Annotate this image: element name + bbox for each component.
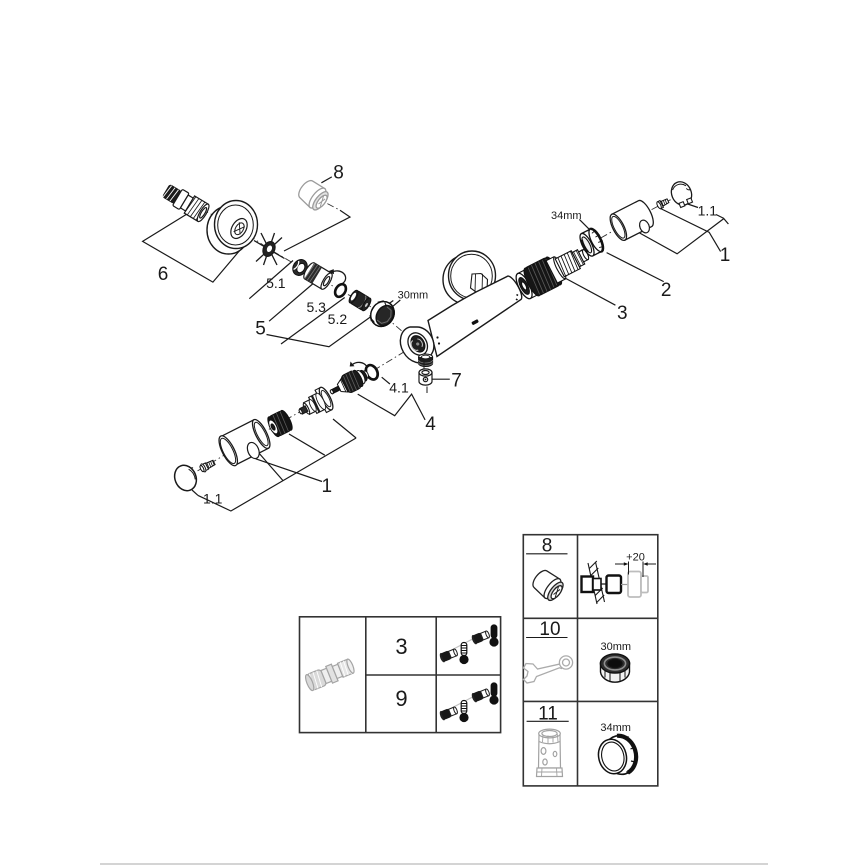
svg-text:9: 9 bbox=[395, 686, 407, 711]
svg-text:30mm: 30mm bbox=[601, 641, 632, 653]
svg-text:2: 2 bbox=[661, 280, 672, 301]
svg-text:1: 1 bbox=[720, 245, 731, 266]
svg-text:34mm: 34mm bbox=[600, 722, 631, 734]
svg-text:1: 1 bbox=[322, 476, 333, 497]
svg-text:1.1: 1.1 bbox=[203, 491, 223, 507]
svg-text:4: 4 bbox=[425, 414, 436, 435]
svg-text:4.1: 4.1 bbox=[389, 380, 409, 396]
svg-text:34mm: 34mm bbox=[551, 210, 582, 222]
svg-text:30mm: 30mm bbox=[398, 290, 429, 302]
svg-text:1.1: 1.1 bbox=[698, 203, 718, 219]
svg-text:5: 5 bbox=[255, 319, 266, 340]
svg-text:5.1: 5.1 bbox=[266, 275, 286, 291]
svg-text:5.3: 5.3 bbox=[306, 299, 326, 315]
svg-text:3: 3 bbox=[395, 634, 407, 659]
svg-text:7: 7 bbox=[451, 371, 462, 392]
svg-text:10: 10 bbox=[539, 619, 560, 640]
svg-text:6: 6 bbox=[158, 264, 169, 285]
svg-text:5.2: 5.2 bbox=[328, 311, 348, 327]
svg-text:3: 3 bbox=[617, 303, 628, 324]
svg-text:8: 8 bbox=[333, 163, 344, 184]
